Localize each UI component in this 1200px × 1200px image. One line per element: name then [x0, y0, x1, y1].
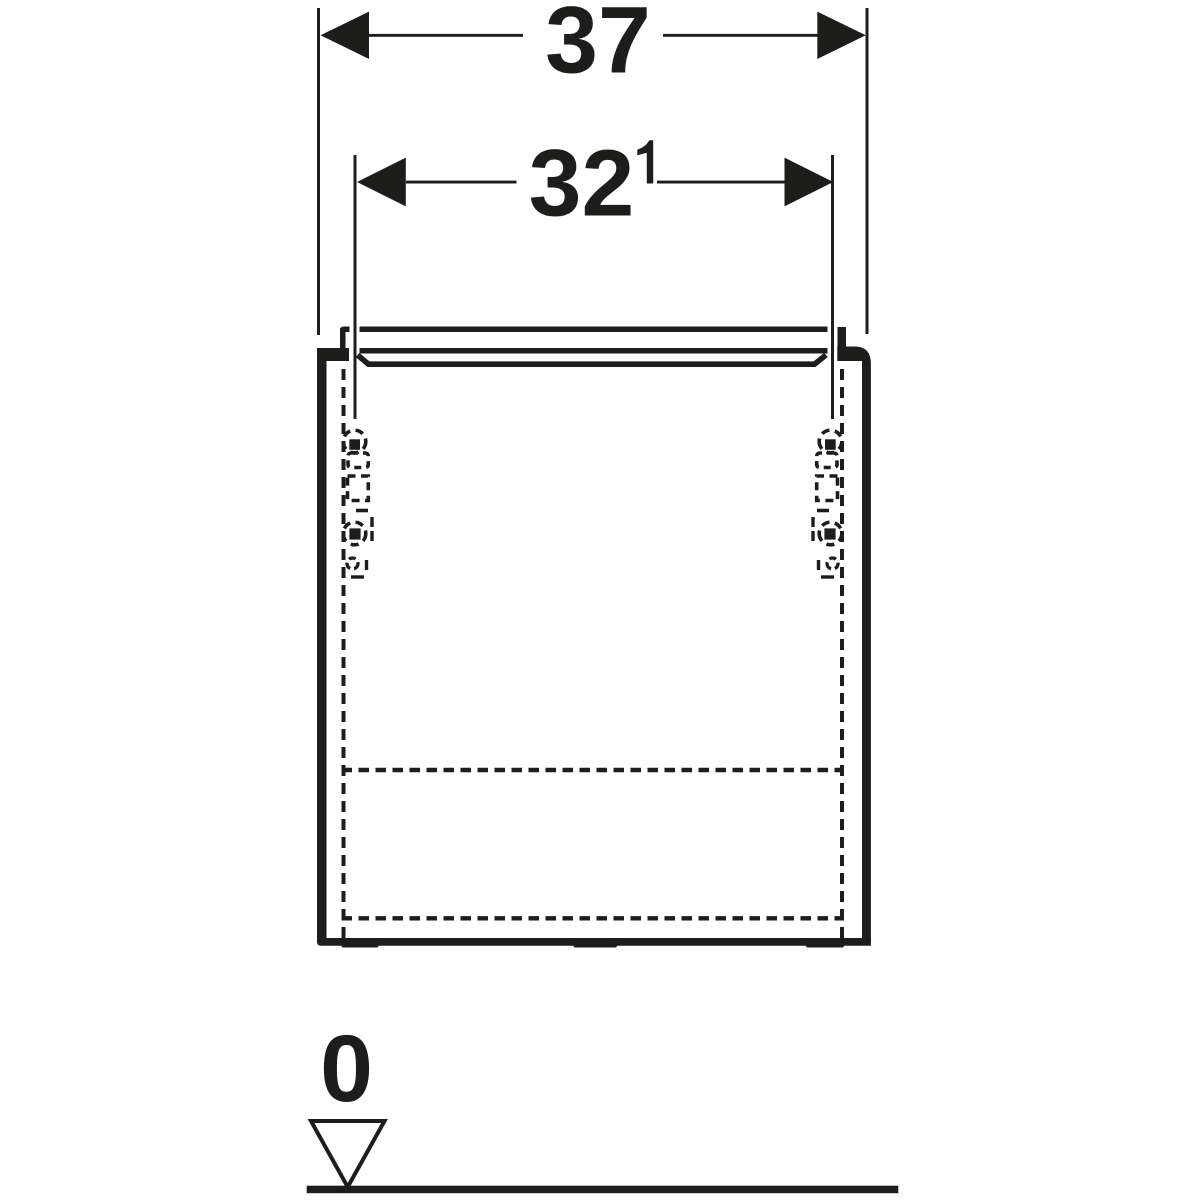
- svg-text:37: 37: [545, 0, 651, 94]
- svg-text:32: 32: [529, 131, 635, 237]
- svg-text:0: 0: [320, 1016, 373, 1122]
